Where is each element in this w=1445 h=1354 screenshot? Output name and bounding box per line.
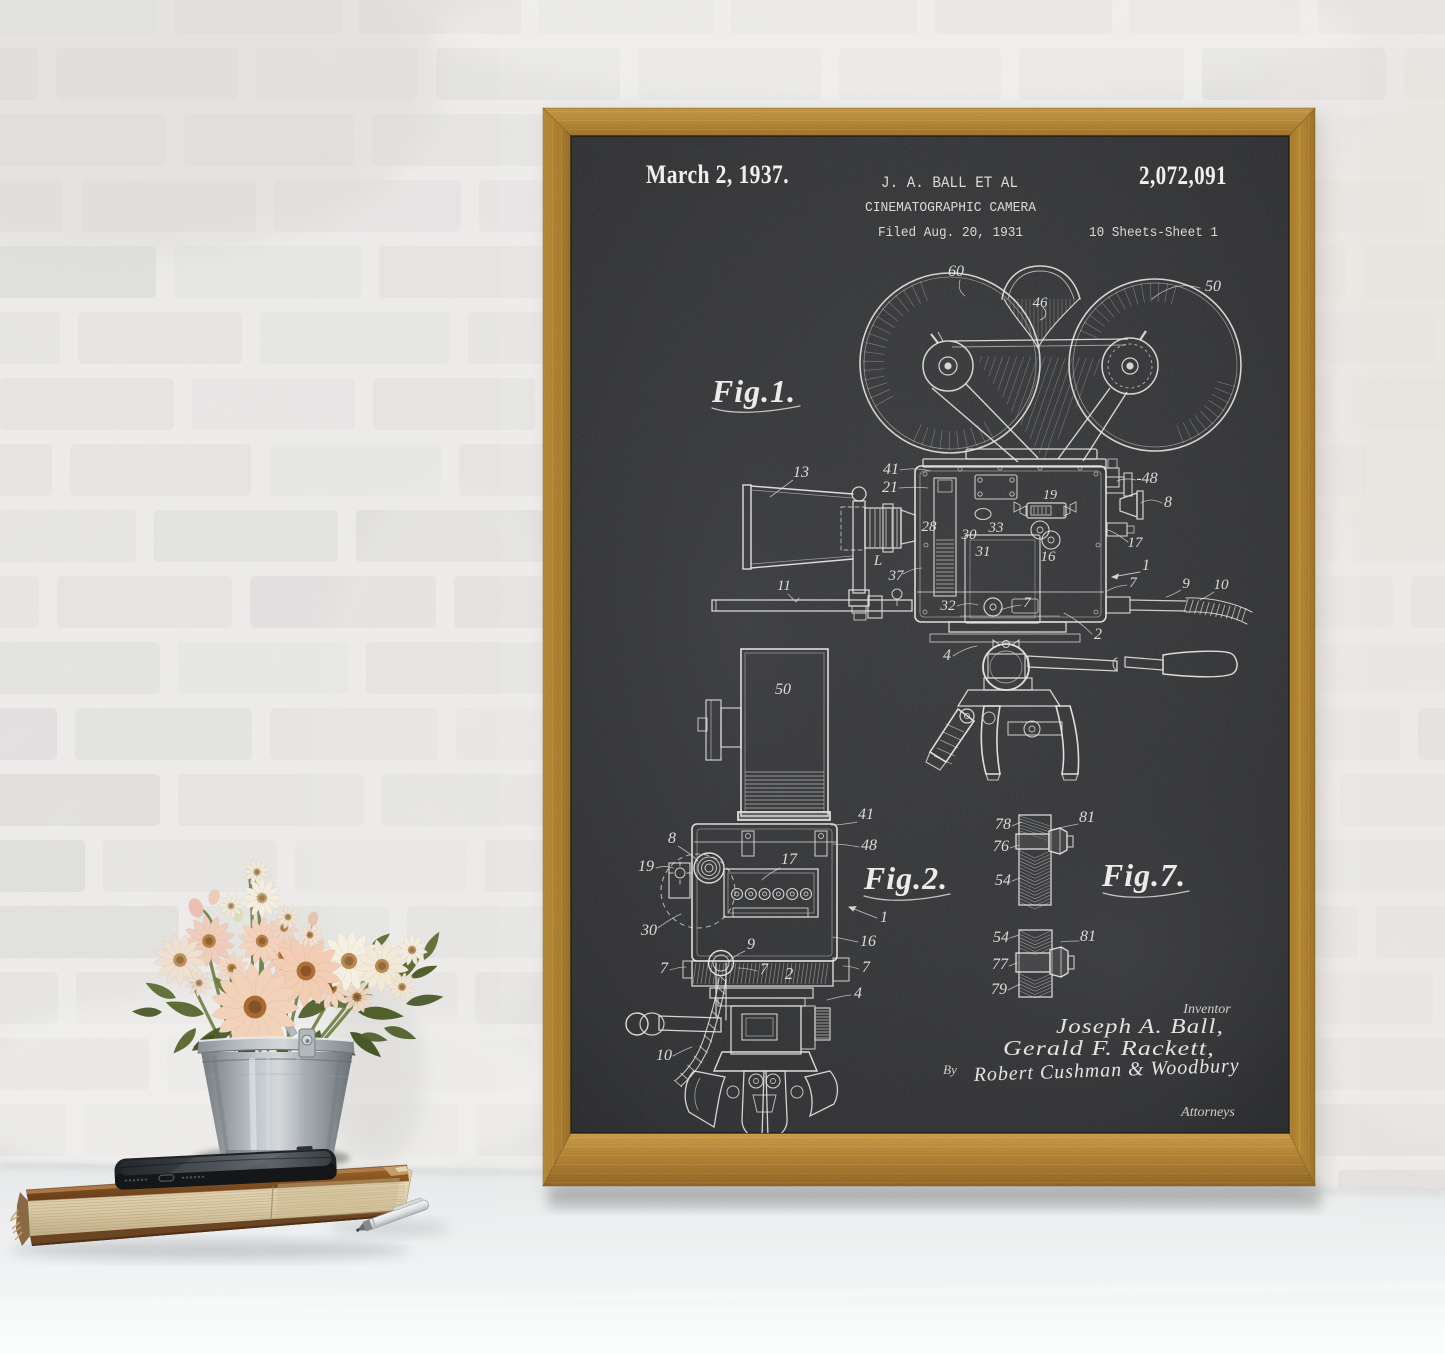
svg-text:46: 46: [1033, 295, 1049, 311]
svg-text:10: 10: [1214, 577, 1230, 593]
svg-text:81: 81: [1079, 809, 1095, 826]
svg-text:7: 7: [760, 961, 769, 978]
svg-text:54: 54: [995, 872, 1011, 889]
svg-text:60: 60: [948, 263, 964, 280]
svg-text:78: 78: [995, 816, 1011, 833]
svg-text:41: 41: [883, 461, 899, 478]
svg-text:Fig.2.: Fig.2.: [863, 860, 948, 896]
svg-text:7: 7: [660, 960, 669, 977]
svg-text:77: 77: [992, 956, 1009, 973]
svg-text:2: 2: [785, 964, 794, 983]
svg-text:9: 9: [1182, 576, 1190, 592]
svg-text:L: L: [873, 553, 882, 569]
svg-text:Filed Aug. 20, 1931: Filed Aug. 20, 1931: [878, 225, 1023, 241]
svg-text:48: 48: [861, 837, 877, 854]
svg-text:50: 50: [775, 681, 791, 698]
svg-text:March 2, 1937.: March 2, 1937.: [646, 160, 789, 189]
svg-text:1: 1: [880, 909, 888, 926]
svg-text:2: 2: [1094, 626, 1102, 643]
svg-text:Joseph A. Ball,: Joseph A. Ball,: [1056, 1014, 1224, 1038]
svg-text:21: 21: [882, 479, 898, 496]
svg-text:J. A. BALL ET AL: J. A. BALL ET AL: [881, 174, 1018, 192]
svg-text:4: 4: [854, 985, 862, 1002]
svg-text:4: 4: [943, 647, 951, 664]
svg-text:30: 30: [640, 922, 657, 939]
svg-text:16: 16: [1041, 549, 1057, 565]
svg-text:8: 8: [1164, 494, 1172, 511]
svg-text:2,072,091: 2,072,091: [1139, 161, 1227, 190]
svg-text:10: 10: [656, 1047, 672, 1064]
svg-text:33: 33: [988, 520, 1004, 536]
svg-text:41: 41: [858, 806, 874, 823]
svg-text:19: 19: [1043, 488, 1057, 503]
svg-text:7: 7: [862, 959, 871, 976]
svg-text:1: 1: [1142, 557, 1150, 574]
svg-text:By: By: [943, 1062, 957, 1077]
svg-text:13: 13: [793, 464, 809, 481]
svg-text:30: 30: [961, 527, 978, 543]
svg-text:32: 32: [940, 598, 957, 614]
svg-text:79: 79: [991, 981, 1007, 998]
svg-text:54: 54: [993, 929, 1009, 946]
svg-text:9: 9: [747, 936, 755, 953]
svg-text:31: 31: [975, 544, 991, 560]
svg-text:16: 16: [860, 933, 876, 950]
svg-text:-48: -48: [1136, 470, 1157, 487]
svg-text:50: 50: [1205, 278, 1221, 295]
svg-text:10 Sheets-Sheet 1: 10 Sheets-Sheet 1: [1089, 225, 1218, 241]
svg-text:76: 76: [993, 838, 1009, 855]
svg-text:8: 8: [668, 830, 676, 847]
svg-text:Attorneys: Attorneys: [1180, 1105, 1235, 1120]
svg-text:17: 17: [781, 851, 798, 868]
svg-text:11: 11: [777, 578, 791, 594]
svg-text:81: 81: [1080, 928, 1096, 945]
svg-text:Fig.7.: Fig.7.: [1101, 857, 1186, 893]
svg-text:37: 37: [888, 568, 906, 584]
svg-text:CINEMATOGRAPHIC CAMERA: CINEMATOGRAPHIC CAMERA: [865, 200, 1037, 216]
svg-text:Fig.1.: Fig.1.: [711, 373, 796, 409]
svg-text:28: 28: [922, 519, 938, 535]
svg-text:17: 17: [1128, 535, 1145, 551]
svg-text:19: 19: [638, 858, 654, 875]
